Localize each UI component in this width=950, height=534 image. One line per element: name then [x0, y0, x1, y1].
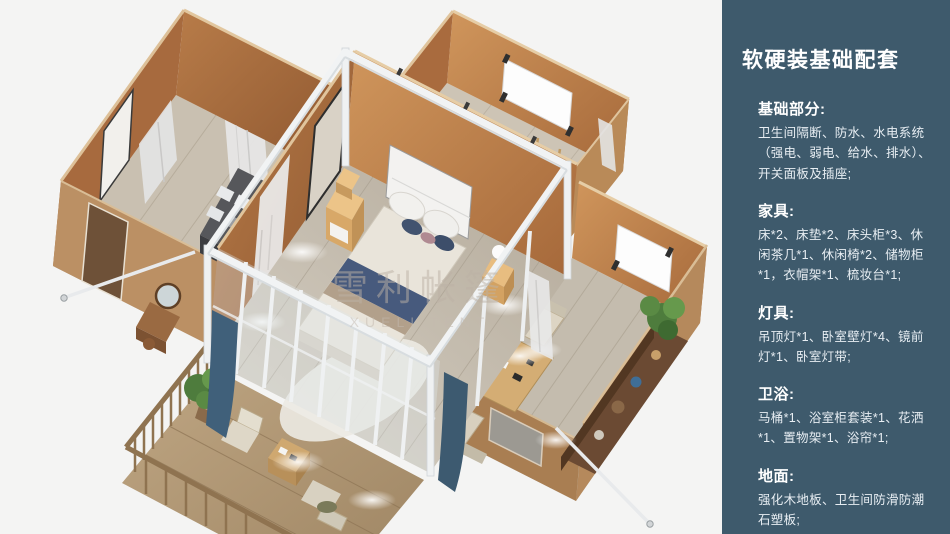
spec-section-furniture: 家具: 床*2、床垫*2、床头柜*3、休闲茶几*1、休闲椅*2、储物柜*1，衣帽… [742, 200, 932, 286]
spec-heading-basics: 基础部分: [758, 98, 932, 119]
spec-body-flooring: 强化木地板、卫生间防滑防潮石塑板; [758, 490, 932, 531]
frame-post [342, 48, 349, 166]
spec-body-bathroom: 马桶*1、浴室柜套装*1、花洒*1、置物架*1、浴帘*1; [758, 408, 932, 449]
spec-section-bathroom: 卫浴: 马桶*1、浴室柜套装*1、花洒*1、置物架*1、浴帘*1; [742, 383, 932, 449]
spec-heading-flooring: 地面: [758, 465, 932, 486]
spec-section-flooring: 地面: 强化木地板、卫生间防滑防潮石塑板; [742, 465, 932, 531]
bedroom-curtain-right [527, 270, 553, 360]
spec-heading-furniture: 家具: [758, 200, 932, 221]
spec-body-lighting: 吊顶灯*1、卧室壁灯*4、镜前灯*1、卧室灯带; [758, 327, 932, 368]
frame-post [204, 245, 211, 363]
slide: 雪利帐篷 XUELI TENT 软硬装基础配套 基础部分: 卫生间隔断、防水、水… [0, 0, 950, 534]
spec-section-basics: 基础部分: 卫生间隔断、防水、水电系统（强电、弱电、给水、排水）、开关面板及插座… [742, 98, 932, 184]
floorplan-render: 雪利帐篷 XUELI TENT [0, 0, 722, 534]
spec-heading-bathroom: 卫浴: [758, 383, 932, 404]
watermark-en: XUELI TENT [350, 314, 491, 330]
watermark-cn: 雪利帐篷 [332, 267, 508, 308]
spec-body-furniture: 床*2、床垫*2、床头柜*3、休闲茶几*1、休闲椅*2、储物柜*1，衣帽架*1、… [758, 225, 932, 286]
sidebar-title: 软硬装基础配套 [742, 44, 932, 74]
spec-body-basics: 卫生间隔断、防水、水电系统（强电、弱电、给水、排水）、开关面板及插座; [758, 123, 932, 184]
frame-post [564, 161, 571, 279]
watermark: 雪利帐篷 XUELI TENT [332, 267, 508, 330]
spec-heading-lighting: 灯具: [758, 302, 932, 323]
frame-post [427, 355, 434, 476]
spec-sidebar: 软硬装基础配套 基础部分: 卫生间隔断、防水、水电系统（强电、弱电、给水、排水）… [722, 0, 950, 534]
spec-section-lighting: 灯具: 吊顶灯*1、卧室壁灯*4、镜前灯*1、卧室灯带; [742, 302, 932, 368]
